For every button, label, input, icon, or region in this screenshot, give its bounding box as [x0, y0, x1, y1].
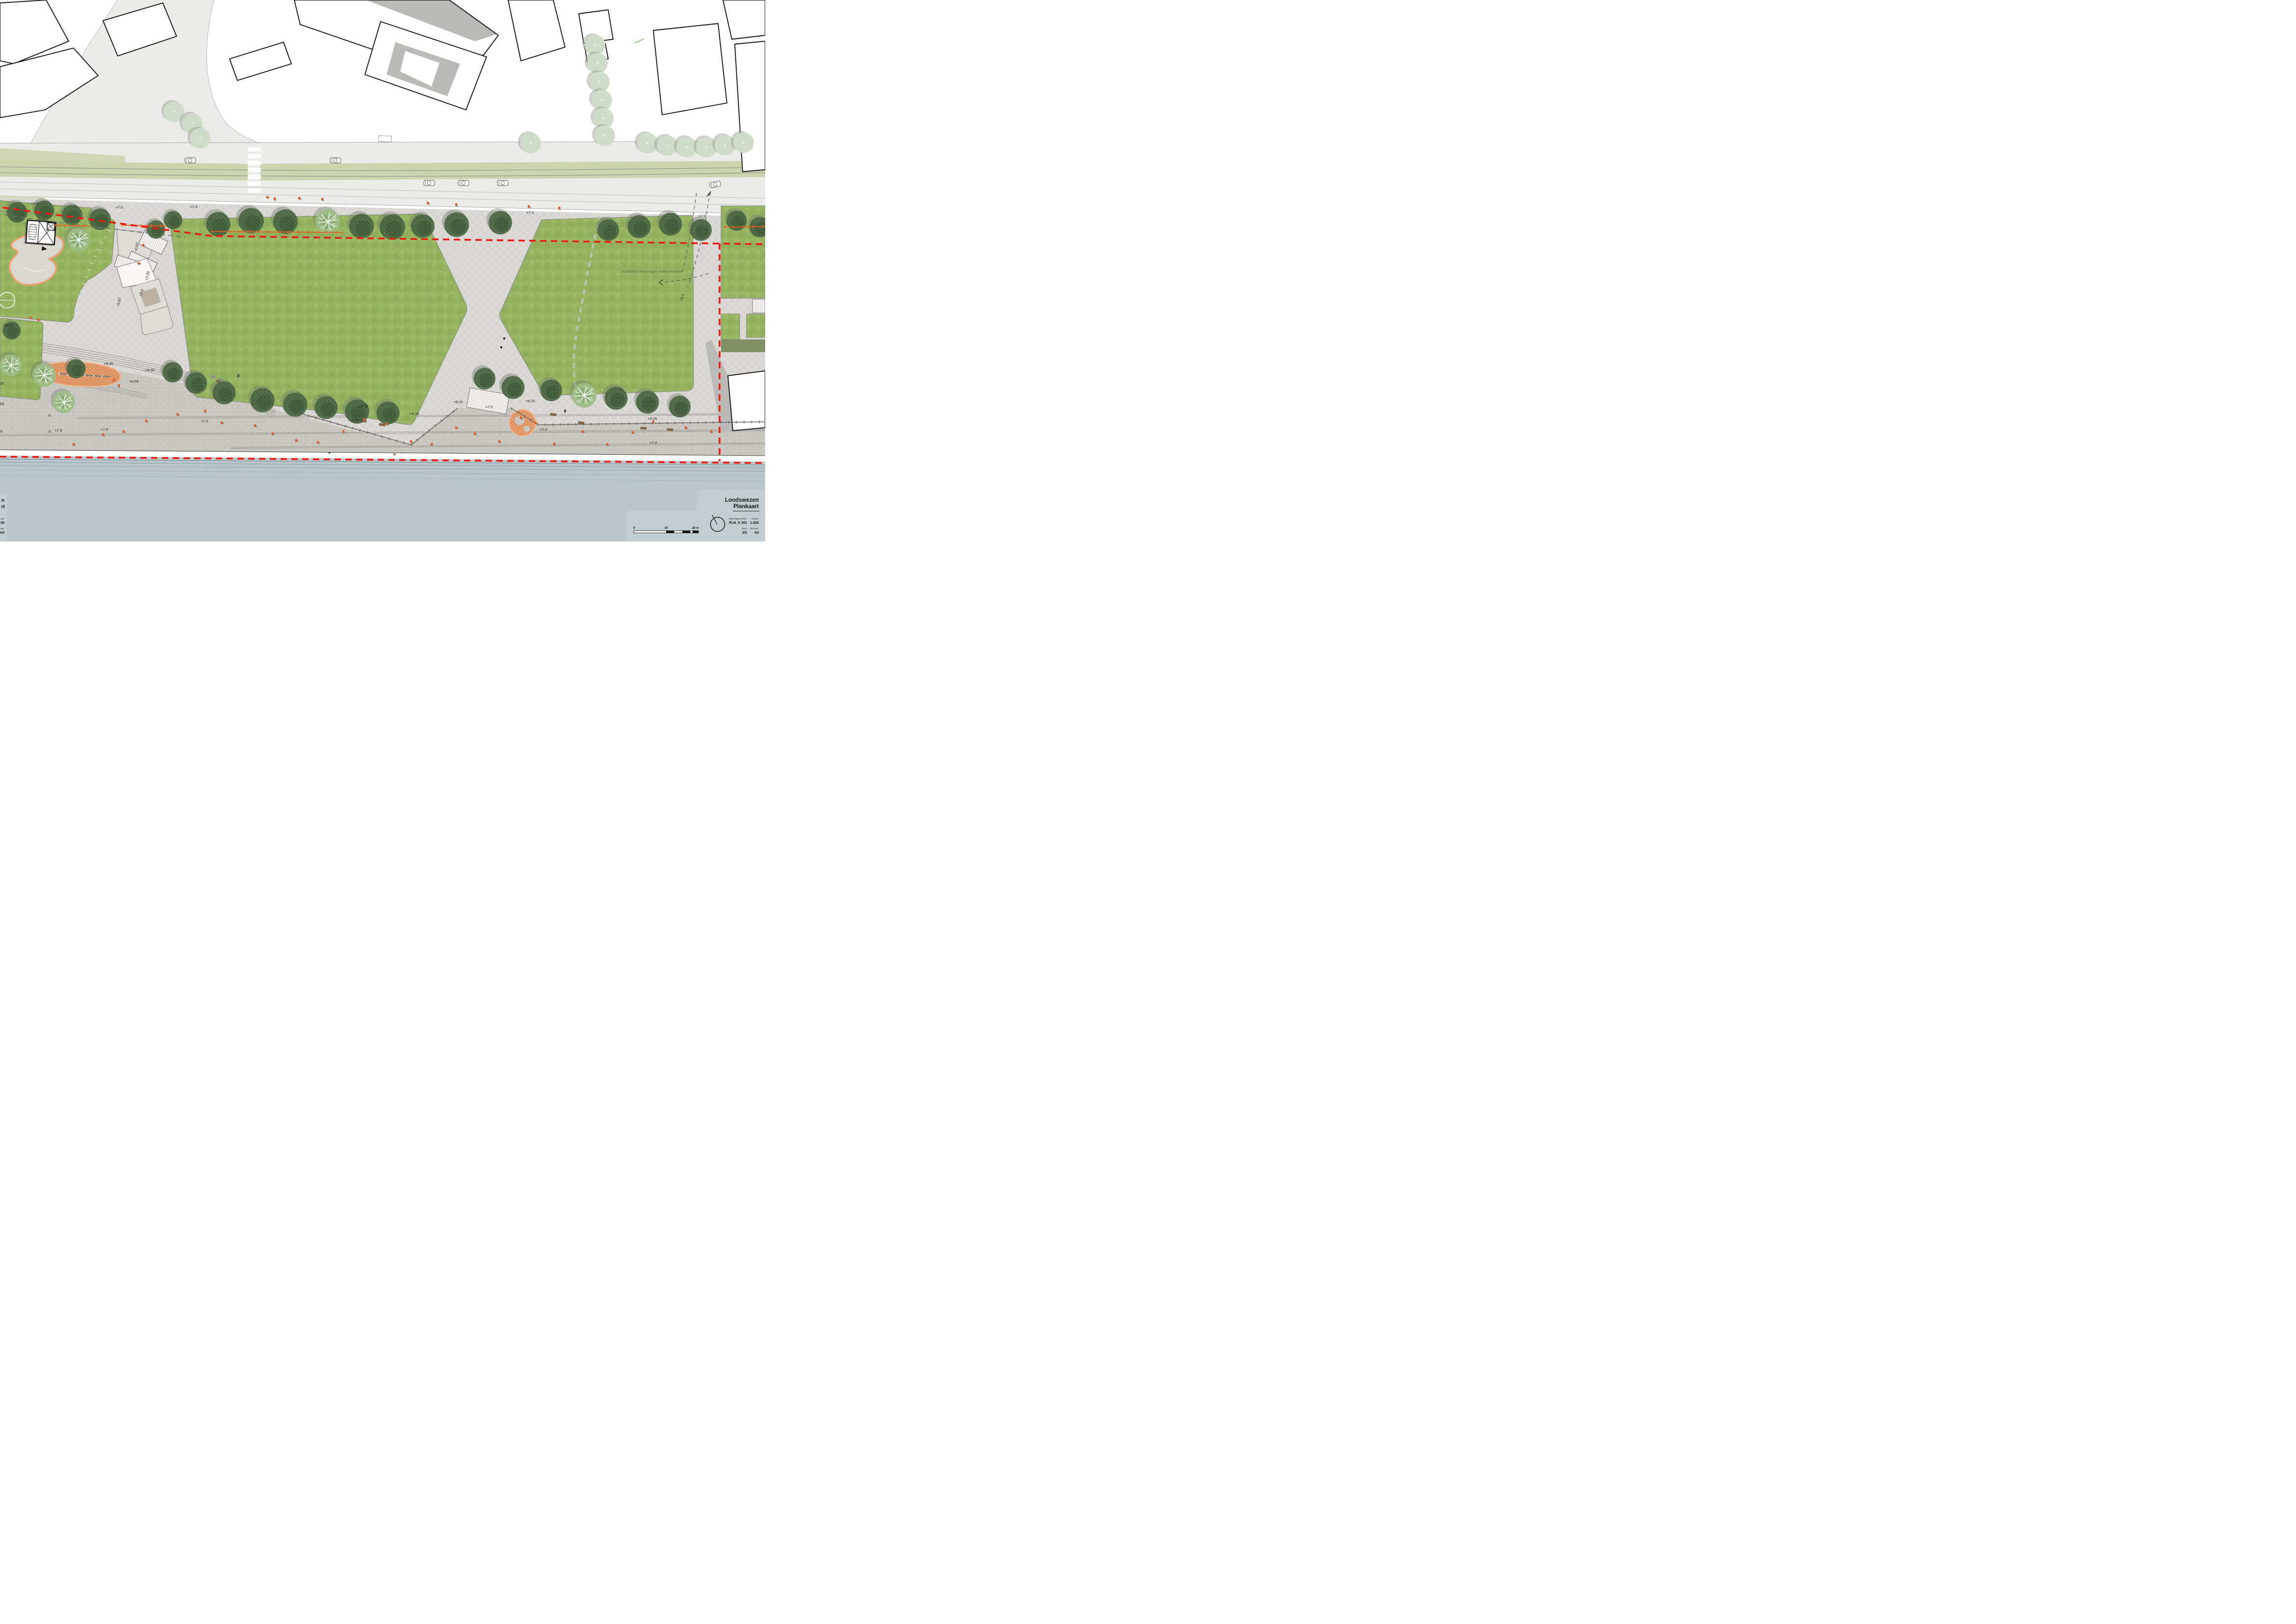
bench [667, 428, 673, 431]
elevation-label: +9.25 [453, 400, 463, 404]
fragment-format-label: aat: [0, 527, 4, 530]
elevation-label: 25 [0, 381, 4, 386]
elevation-label: +9.25 [145, 368, 154, 372]
format-value: A0 [754, 531, 759, 535]
zone-note-text: mobiliteit leveringen evenementen [622, 269, 683, 274]
fragment-format-value: A0 [0, 531, 4, 535]
sheet-label: blad: [742, 527, 747, 530]
fragment-project-tail: n [1, 498, 4, 503]
building [653, 24, 727, 115]
drawing-number: PLN_K 001 [729, 521, 747, 525]
hedge-east [721, 339, 765, 352]
sheet-value: 2/2 [742, 531, 747, 535]
bench [578, 421, 584, 424]
elevation-label: 55 [0, 402, 4, 406]
elevation-label: +9.25 [647, 416, 657, 421]
elevation-label: +7.0 [351, 418, 359, 423]
elevation-label: +7.0 [540, 427, 547, 432]
fragment-scale-value: 00 [0, 521, 4, 525]
east-stairs [752, 299, 765, 313]
elevator-stair-building [24, 220, 56, 246]
scale-label: schaal: [751, 517, 759, 520]
elevation-label: +7.0 [190, 205, 198, 209]
car [424, 180, 435, 185]
title-panel-fragment: n rt aal: 00 aat: A0 [0, 493, 7, 541]
fragment-sheet-tail: rt [1, 504, 5, 510]
elevation-label: +7.0 [527, 210, 534, 215]
elevation-label: +7.8 [55, 428, 62, 433]
elevation-label: +9.25 [525, 399, 535, 403]
elevation-label: +7.0 [650, 440, 657, 445]
format-label: formaat: [750, 527, 759, 530]
bench [641, 427, 646, 429]
car [330, 157, 341, 163]
trash-bin [237, 374, 239, 377]
elevation-label: +7.0 [486, 405, 493, 409]
elevation-label: +7.0 [201, 419, 208, 423]
car [458, 180, 469, 185]
elevation-label: +7.0 [101, 427, 108, 432]
trash-bin [564, 409, 566, 412]
shelter [379, 136, 391, 142]
title-sheet-name: Plankaart [733, 504, 759, 510]
elevation-label: +7.0 [116, 205, 123, 209]
elevation-label: +7.0 [31, 201, 39, 206]
elevation-label: +8.55 [129, 379, 138, 384]
fragment-scale-label: aal: [0, 517, 4, 520]
drawing-number-label: tekeningnummer: [729, 517, 747, 520]
scale-value: 1:200 [750, 521, 759, 525]
car [185, 157, 196, 163]
scale-tick-20: 20 m [692, 526, 699, 530]
site-plan: +7.0+7.0+7.0+7.0+7.0+9.25+0.87+3.33+7.0+… [0, 0, 765, 541]
bench [550, 413, 556, 416]
car [497, 180, 508, 185]
elevation-label: +9.25 [3, 323, 12, 328]
scale-tick-10: 10 [665, 526, 668, 530]
elevation-label: +9.25 [103, 361, 113, 366]
elevation-label: +7.0 [699, 214, 706, 218]
elevation-label: +9.25 [359, 404, 368, 408]
elevation-label: +9.25 [410, 412, 419, 416]
elevation-label: 8 [0, 429, 2, 434]
site-plan-canvas: +7.0+7.0+7.0+7.0+7.0+9.25+0.87+3.33+7.0+… [0, 0, 765, 541]
title-project: Loodswezen [725, 497, 759, 503]
scale-tick-0: 0 [633, 526, 635, 530]
